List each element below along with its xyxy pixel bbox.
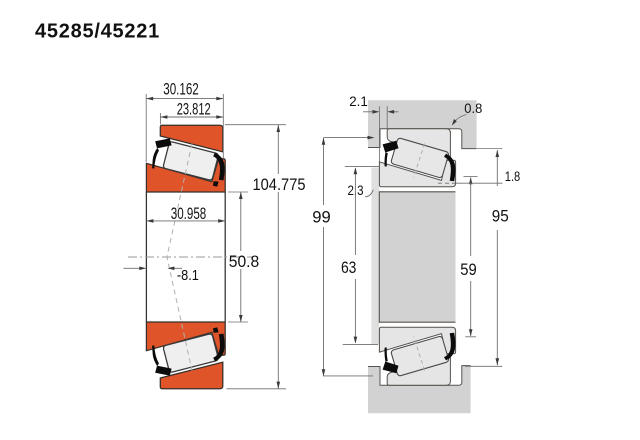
svg-text:-8.1: -8.1 <box>177 268 199 284</box>
svg-text:1.8: 1.8 <box>505 168 521 184</box>
svg-text:2.1: 2.1 <box>349 93 368 109</box>
svg-text:59: 59 <box>460 260 477 279</box>
svg-text:45285/45221: 45285/45221 <box>35 21 160 43</box>
svg-text:30.958: 30.958 <box>171 205 207 223</box>
svg-text:0.8: 0.8 <box>464 100 482 116</box>
svg-text:50.8: 50.8 <box>229 252 260 271</box>
svg-text:99: 99 <box>312 208 331 227</box>
svg-text:23.812: 23.812 <box>177 101 211 119</box>
svg-text:30.162: 30.162 <box>163 81 199 99</box>
svg-text:95: 95 <box>492 207 509 226</box>
svg-text:63: 63 <box>341 258 357 277</box>
svg-text:104.775: 104.775 <box>253 175 306 194</box>
